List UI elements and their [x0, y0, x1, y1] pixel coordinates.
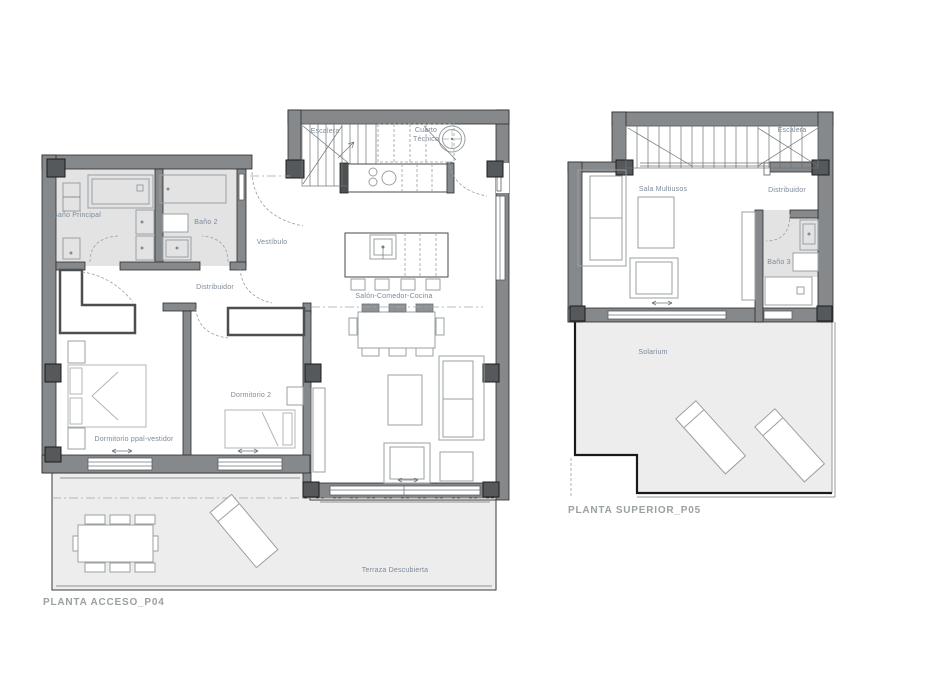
slider-arrow: [652, 301, 672, 305]
room-label-escalera: Escalera: [303, 127, 347, 136]
shower-drain: [797, 287, 804, 294]
kitchen-counter: [348, 164, 447, 192]
tall-cabinet: [742, 212, 755, 300]
room-label-bano-2: Baño 2: [184, 218, 228, 227]
floor-plan-sheet: Escalera Cuarto Técnico Baño Principal B…: [0, 0, 939, 695]
floor-plan-drawing: [0, 0, 939, 695]
room-label-terraza: Terraza Descubierta: [343, 566, 447, 575]
bed-2: [225, 410, 295, 448]
nightstand: [287, 387, 303, 405]
room-label-solarium: Solarium: [627, 348, 679, 357]
wardrobe: [228, 308, 304, 335]
plan-acceso: [42, 110, 509, 590]
nightstand: [68, 341, 85, 363]
room-label-escalera-superior: Escalera: [770, 126, 814, 135]
room-label-distribuidor-superior: Distribuidor: [755, 186, 819, 195]
side-table: [440, 452, 473, 481]
room-label-distribuidor: Distribuidor: [189, 283, 241, 292]
room-label-dormitorio-ppal: Dormitorio ppal-vestidor: [82, 435, 186, 444]
main-bed: [68, 365, 146, 427]
room-label-bano-principal: Baño Principal: [50, 211, 104, 220]
coffee-table: [638, 197, 674, 248]
armchair: [384, 443, 430, 483]
room-label-dormitorio-2: Dormitorio 2: [219, 391, 283, 400]
bar-stools: [351, 279, 440, 290]
walk-in-closet: [60, 270, 135, 333]
outdoor-table-set: [73, 515, 158, 572]
room-label-sala-multiusos: Sala Multiusos: [621, 185, 705, 194]
room-label-cuarto-tecnico: Cuarto Técnico: [404, 126, 448, 144]
kitchen-island: [345, 233, 448, 290]
room-label-bano-3: Baño 3: [757, 258, 801, 267]
shower: [765, 277, 812, 305]
plan-title-superior: PLANTA SUPERIOR_P05: [568, 505, 701, 516]
room-label-salon-comedor-cocina: Salón-Comedor-Cocina: [342, 292, 446, 301]
armchair: [630, 258, 678, 298]
tall-cabinet: [311, 388, 325, 472]
sofa: [578, 170, 626, 266]
sofa: [439, 356, 484, 440]
dining-table-set: [349, 304, 444, 356]
coffee-table: [388, 375, 422, 425]
plan-superior: [568, 112, 835, 497]
plan-title-acceso: PLANTA ACCESO_P04: [43, 597, 165, 608]
room-label-vestibulo: Vestíbulo: [246, 238, 298, 247]
